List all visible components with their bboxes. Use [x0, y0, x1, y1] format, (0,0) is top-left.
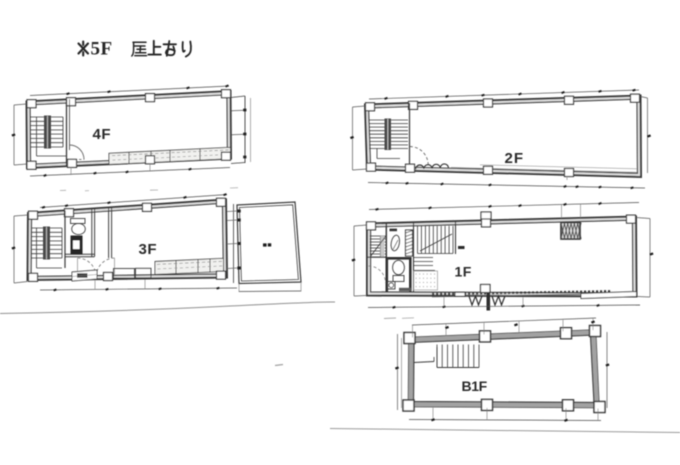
svg-text:5F: 5F [91, 39, 113, 60]
svg-text:2F: 2F [505, 150, 525, 167]
svg-text:1F: 1F [455, 264, 472, 280]
svg-text:3F: 3F [139, 241, 158, 258]
svg-text:4F: 4F [93, 126, 112, 143]
svg-text:B1F: B1F [462, 378, 488, 394]
